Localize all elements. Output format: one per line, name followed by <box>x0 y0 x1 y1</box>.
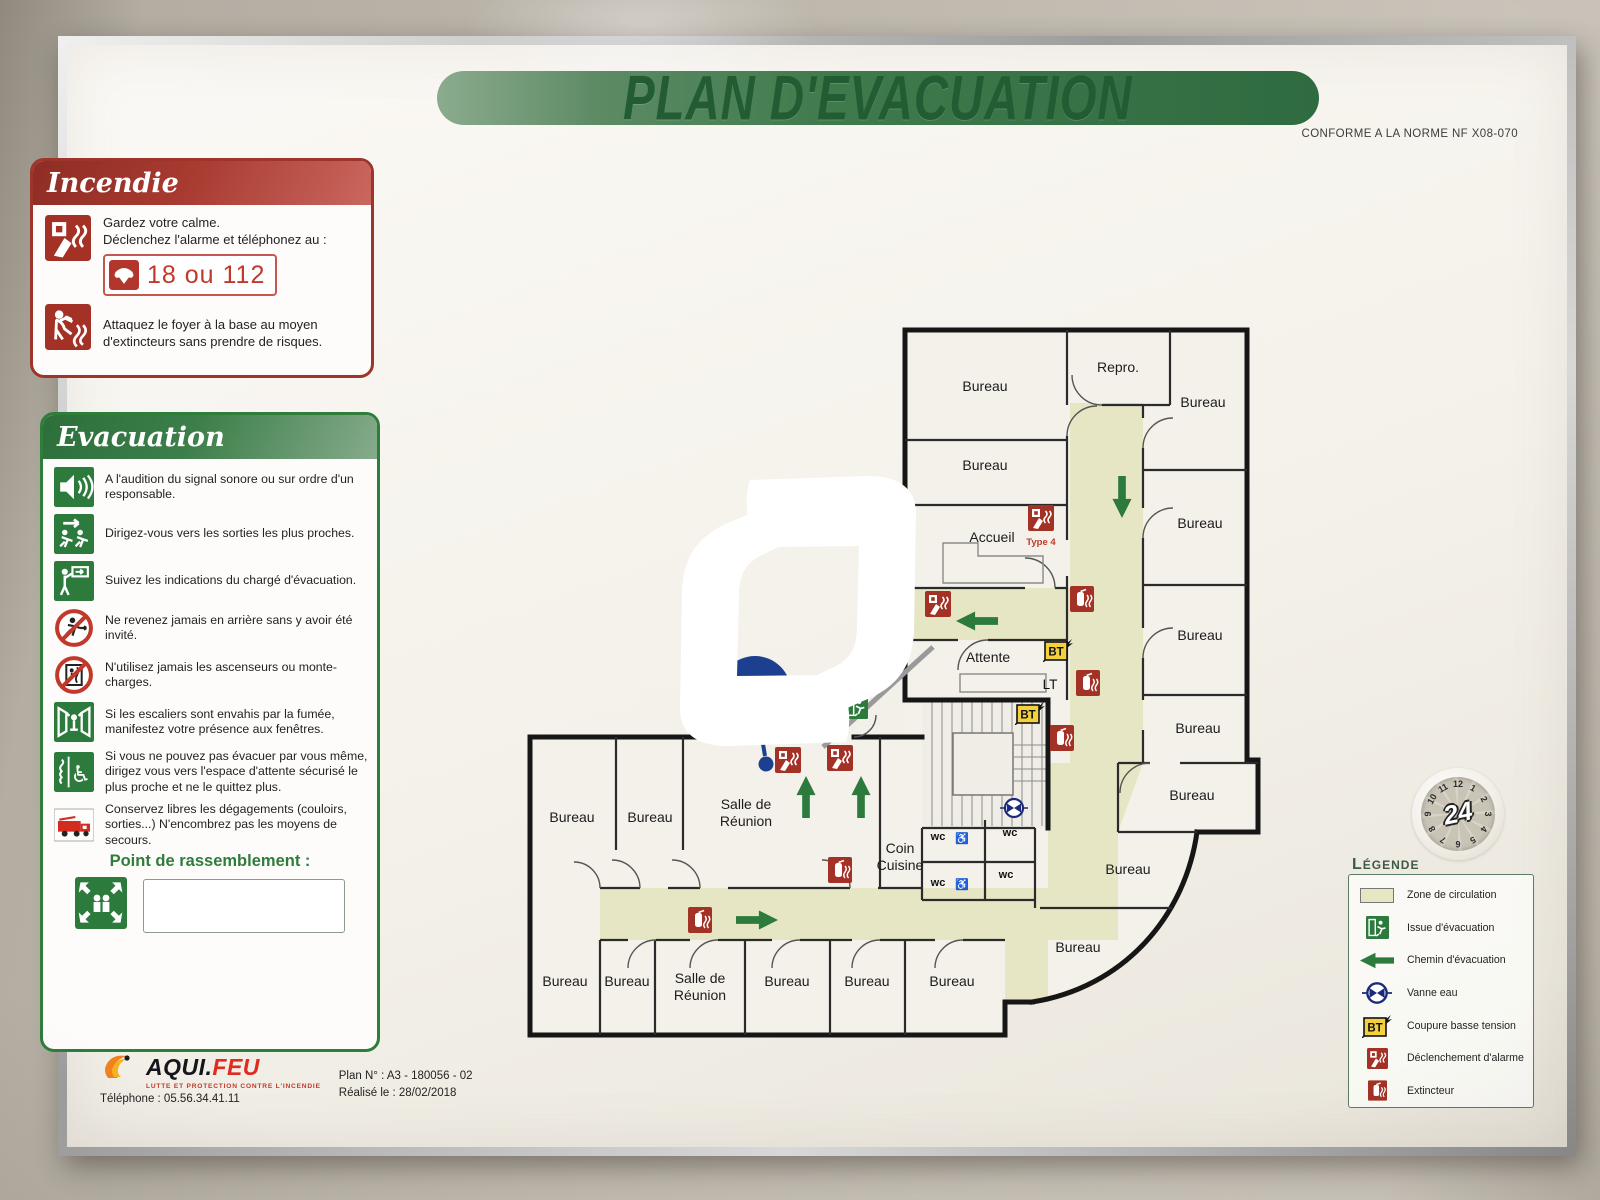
bt-icon <box>1355 1014 1399 1038</box>
title-banner: PLAN D'EVACUATION <box>437 71 1319 125</box>
alarm-line: Déclenchez l'alarme et téléphonez au : <box>103 232 327 247</box>
calm-line: Gardez votre calme. <box>103 215 220 230</box>
legend-item-bt: Coupure basse tension <box>1355 1012 1529 1040</box>
legend-box: Zone de circulation Issue d'évacuation C… <box>1348 874 1534 1108</box>
footer-phone: Téléphone : 05.56.34.41.11 <box>100 1093 321 1105</box>
legend-item-exit: Issue d'évacuation <box>1355 914 1529 942</box>
instruction-text: Dirigez-vous vers les sorties les plus p… <box>105 526 354 541</box>
guide-icon <box>53 561 95 601</box>
circulation-zone-swatch <box>1355 888 1399 903</box>
no-return-icon <box>53 608 95 648</box>
instruction-keep-clear: Conservez libres les dégagements (couloi… <box>53 802 369 848</box>
evacuation-arrow-icon <box>1355 951 1399 970</box>
sticker-month-number: 6 <box>1452 835 1464 849</box>
instruction-exits: Dirigez-vous vers les sorties les plus p… <box>53 514 369 554</box>
legend-item-zone: Zone de circulation <box>1355 881 1529 909</box>
legend-label: Chemin d'évacuation <box>1407 954 1506 966</box>
plan-info: Plan N° : A3 - 180056 - 02 Réalisé le : … <box>339 1052 473 1101</box>
conformity-note: CONFORME A LA NORME NF X08-070 <box>1060 128 1518 140</box>
legend-label: Coupure basse tension <box>1407 1020 1516 1032</box>
legend-item-path: Chemin d'évacuation <box>1355 946 1529 974</box>
instruction-follow: Suivez les indications du chargé d'évacu… <box>53 561 369 601</box>
legend-label: Déclenchement d'alarme <box>1407 1052 1524 1064</box>
incendie-text-1: Gardez votre calme. Déclenchez l'alarme … <box>103 215 327 296</box>
instruction-window: Si les escaliers sont envahis par la fum… <box>53 702 369 742</box>
alarm-call-point-icon <box>45 215 91 266</box>
legend-title: Légende <box>1352 856 1419 874</box>
plan-date: Réalisé le : 28/02/2018 <box>339 1085 473 1102</box>
plan-number: Plan N° : A3 - 180056 - 02 <box>339 1068 473 1085</box>
person-extinguisher-icon <box>45 304 91 355</box>
running-exit-icon <box>53 514 95 554</box>
sticker-month-number: 9 <box>1423 808 1437 820</box>
brand-feu: FEU <box>212 1054 260 1080</box>
sticker-year: 24 <box>1441 795 1476 831</box>
legend-label: Vanne eau <box>1407 987 1457 999</box>
legend-label: Extincteur <box>1407 1085 1454 1097</box>
svg-text:♿: ♿ <box>71 762 92 788</box>
instruction-text: Suivez les indications du chargé d'évacu… <box>105 573 356 588</box>
incendie-body: Gardez votre calme. Déclenchez l'alarme … <box>33 205 371 378</box>
sticker-month-number: 12 <box>1452 779 1464 793</box>
inspection-sticker: 24 121234567891011 <box>1412 768 1504 860</box>
instruction-no-elevator: N'utilisez jamais les ascenseurs ou mont… <box>53 655 369 695</box>
assembly-point-title: Point de rassemblement : <box>53 852 367 871</box>
instruction-text: Ne revenez jamais en arrière sans y avoi… <box>105 613 369 644</box>
sticker-month-number: 3 <box>1479 808 1493 820</box>
water-valve-icon <box>1355 981 1399 1005</box>
evacuation-title: Evacuation <box>57 422 225 453</box>
legend-item-valve: Vanne eau <box>1355 979 1529 1007</box>
instruction-signal: A l'audition du signal sonore ou sur ord… <box>53 467 369 507</box>
legend-item-extinguisher: Extincteur <box>1355 1077 1529 1105</box>
instruction-text: N'utilisez jamais les ascenseurs ou mont… <box>105 660 369 691</box>
assembly-point-field <box>143 879 345 933</box>
exit-icon <box>1355 916 1399 939</box>
phone-icon <box>109 260 139 290</box>
speaker-icon <box>53 467 95 507</box>
firetruck-icon <box>53 808 95 842</box>
brand-aqui: AQUI. <box>146 1054 212 1080</box>
legend-label: Issue d'évacuation <box>1407 922 1494 934</box>
incendie-title: Incendie <box>47 168 179 199</box>
window-icon <box>53 702 95 742</box>
emergency-phone-box: 18 ou 112 <box>103 254 277 297</box>
incendie-alarm-instruction: Gardez votre calme. Déclenchez l'alarme … <box>45 215 361 296</box>
page-title: PLAN D'EVACUATION <box>623 62 1133 134</box>
incendie-header: Incendie <box>33 161 371 205</box>
evacuation-panel: Evacuation A l'audition du signal sonore… <box>40 412 380 1052</box>
no-elevator-icon <box>53 655 95 695</box>
instruction-wheelchair: ♿ Si vous ne pouvez pas évacuer par vous… <box>53 749 369 795</box>
assembly-point-section: Point de rassemblement : <box>43 848 377 934</box>
emergency-number: 18 ou 112 <box>147 259 265 292</box>
legend-item-alarm: Déclenchement d'alarme <box>1355 1044 1529 1072</box>
aquifeu-logo-flame <box>100 1052 142 1082</box>
instruction-text: Si vous ne pouvez pas évacuer par vous m… <box>105 749 369 795</box>
incendie-extinguish-instruction: Attaquez le foyer à la base au moyen d'e… <box>45 304 361 364</box>
assembly-point-icon <box>75 877 127 934</box>
wheelchair-icon: ♿ <box>53 752 95 792</box>
legend-label: Zone de circulation <box>1407 889 1497 901</box>
inspection-sticker-dial: 24 121234567891011 <box>1421 777 1495 851</box>
alarm-icon <box>1355 1048 1399 1069</box>
evacuation-header: Evacuation <box>43 415 377 459</box>
evacuation-instructions: A l'audition du signal sonore ou sur ord… <box>43 459 377 848</box>
incendie-panel: Incendie Gardez votre calme. Déclenchez … <box>30 158 374 378</box>
instruction-text: A l'audition du signal sonore ou sur ord… <box>105 472 369 503</box>
photo-of-evacuation-plan: PLAN D'EVACUATION CONFORME A LA NORME NF… <box>0 0 1600 1200</box>
footer: AQUI.FEU LUTTE ET PROTECTION CONTRE L'IN… <box>100 1052 473 1105</box>
instruction-no-return: Ne revenez jamais en arrière sans y avoi… <box>53 608 369 648</box>
incendie-text-2: Attaquez le foyer à la base au moyen d'e… <box>103 317 361 351</box>
instruction-text: Si les escaliers sont envahis par la fum… <box>105 707 369 738</box>
instruction-text: Conservez libres les dégagements (couloi… <box>105 802 369 848</box>
brand-tagline: LUTTE ET PROTECTION CONTRE L'INCENDIE <box>146 1083 321 1090</box>
extinguisher-icon <box>1355 1080 1399 1101</box>
brand-name: AQUI.FEU <box>146 1054 260 1081</box>
